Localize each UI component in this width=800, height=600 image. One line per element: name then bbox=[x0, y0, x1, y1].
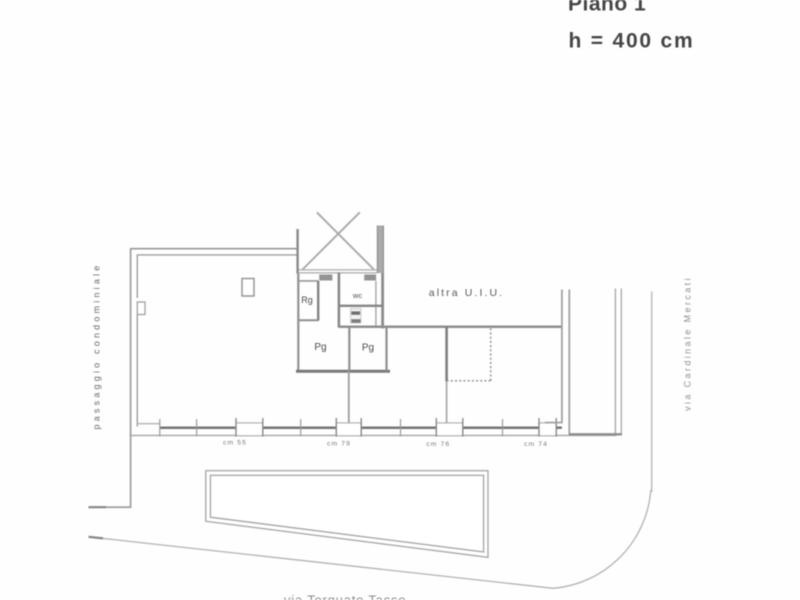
svg-text:Pg: Pg bbox=[362, 343, 374, 354]
svg-text:Piano 1: Piano 1 bbox=[568, 0, 646, 16]
svg-text:via Torquato Tasso: via Torquato Tasso bbox=[284, 593, 406, 600]
svg-text:h = 400 cm: h = 400 cm bbox=[569, 30, 695, 53]
svg-text:cm 55: cm 55 bbox=[223, 440, 247, 447]
svg-text:cm 76: cm 76 bbox=[426, 441, 450, 448]
svg-text:via Cardinale Mercati: via Cardinale Mercati bbox=[683, 276, 693, 411]
svg-text:Rg: Rg bbox=[301, 295, 313, 305]
svg-text:wc: wc bbox=[352, 291, 362, 300]
svg-text:cm 74: cm 74 bbox=[524, 441, 548, 448]
svg-text:Pg: Pg bbox=[314, 342, 326, 353]
svg-text:altra U.I.U.: altra U.I.U. bbox=[429, 287, 504, 299]
svg-text:passaggio condominiale: passaggio condominiale bbox=[92, 263, 102, 430]
svg-text:cm 79: cm 79 bbox=[327, 440, 351, 447]
